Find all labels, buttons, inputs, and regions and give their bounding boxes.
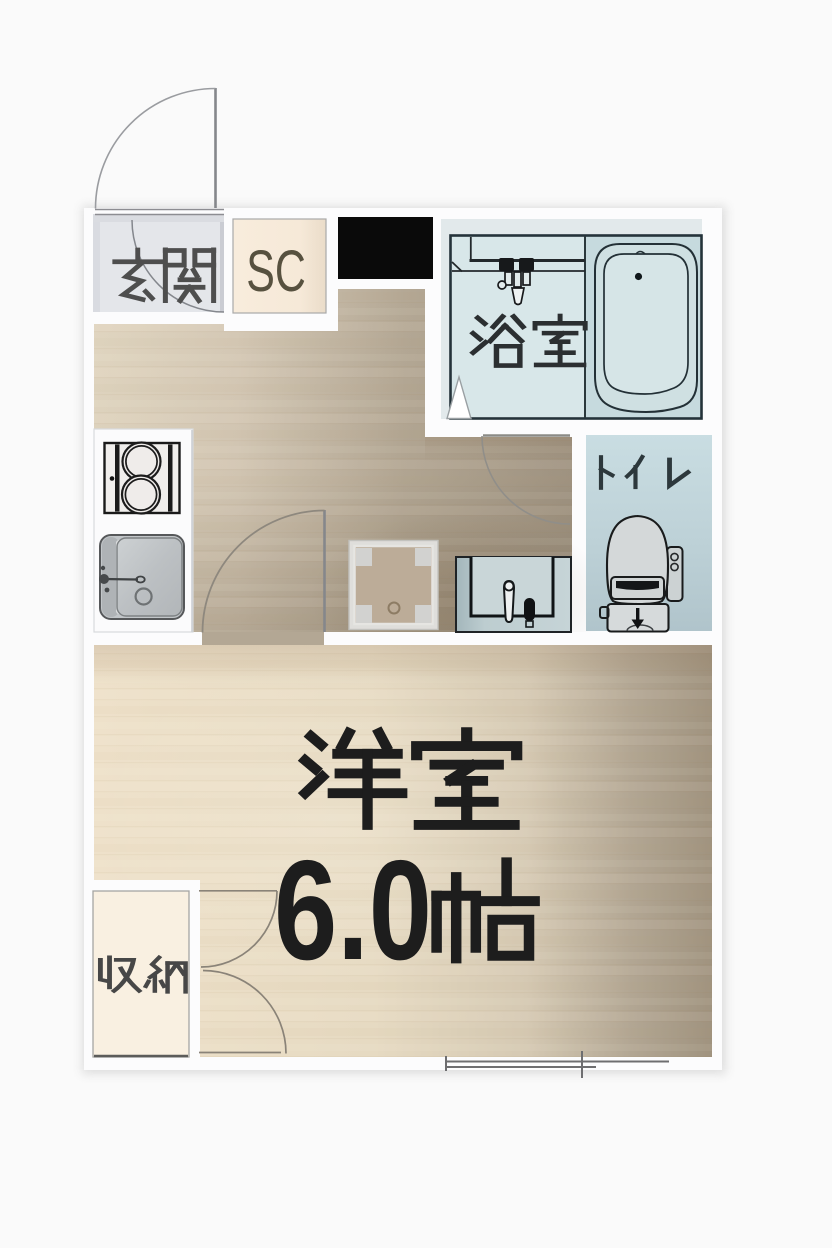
svg-text:6.0: 6.0 [274,832,432,990]
svg-text:SC: SC [246,239,306,304]
